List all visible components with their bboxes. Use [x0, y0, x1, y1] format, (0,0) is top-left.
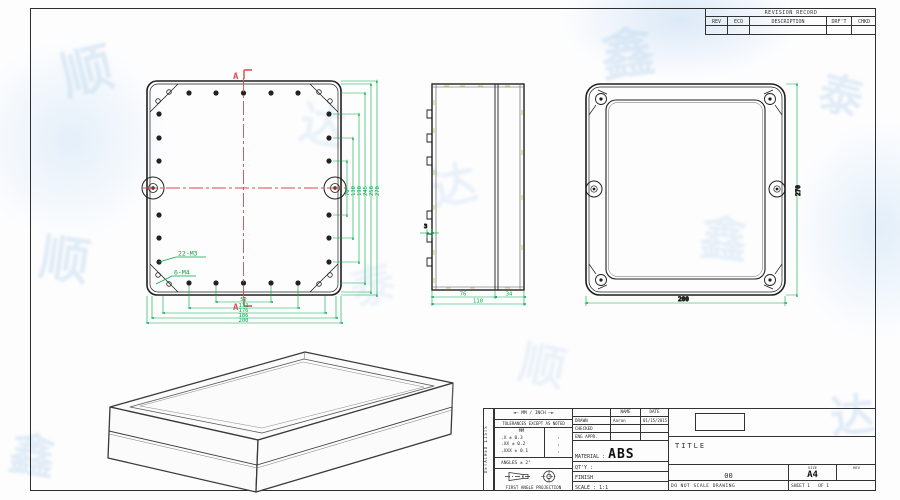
title-cell: TITLE: [668, 436, 876, 464]
logo-cell: [668, 408, 876, 436]
tolerance-values: MM .X ± 0.3 .XX ± 0.2 .XXX ± 0.1: [494, 427, 544, 457]
section-label-top: A: [233, 72, 239, 82]
checked-name: [610, 424, 640, 432]
revision-col-description: DESCRIPTION: [749, 17, 826, 26]
scale-cell: SCALE : 1:1: [572, 481, 668, 491]
finish-cell: FINISH: [572, 471, 668, 481]
detached-lists-strip: DETACHED LISTS: [483, 408, 494, 491]
drawn-label: DRAWN: [572, 416, 610, 424]
checked-label: CHECKED: [572, 424, 610, 432]
drawn-date: 01/15/2015: [640, 416, 668, 424]
do-not-scale-note: DO NOT SCALE DRAWING: [668, 480, 788, 491]
first-angle-projection-symbol: [497, 470, 572, 483]
revision-col-eco: ECO: [727, 17, 749, 26]
dim-text: 270: [375, 186, 381, 196]
eng-appr-date: [640, 432, 668, 440]
tolerance-row: .XXX ± 0.1: [501, 449, 542, 456]
revision-table: REVISION RECORD REV ECO DESCRIPTION DRF'…: [705, 8, 876, 35]
rev-label: REV: [837, 465, 876, 470]
date-header: DATE: [640, 408, 668, 416]
units-row: ◄— MM / INCH —►: [494, 408, 572, 419]
revision-table-empty-row: [705, 26, 876, 35]
material-cell: MATERIAL : ABS: [572, 440, 668, 461]
material-label: MATERIAL :: [575, 454, 605, 460]
size-value: A4: [789, 470, 836, 480]
projection-cell: FIRST ANGLE PROJECTION: [494, 468, 572, 491]
checked-date: [640, 424, 668, 432]
drawing-number-cell: 00: [668, 464, 788, 480]
revision-table-title: REVISION RECORD: [705, 8, 876, 17]
dim-text: 200: [239, 318, 249, 324]
front-view: A A 22-M3 6-M4 70 130 190 245 258 270: [142, 70, 381, 324]
sheet-cell: SHEET 1 OF 1: [788, 480, 876, 491]
projection-label: FIRST ANGLE PROJECTION: [497, 485, 570, 490]
sheet-of: OF 1: [818, 484, 829, 489]
tolerance-dots: · · ·: [544, 427, 572, 457]
eng-appr-label: ENG APPR.: [572, 432, 610, 440]
sheet-number: SHEET 1: [791, 484, 810, 489]
material-value: ABS: [608, 447, 634, 461]
logo-box: [695, 413, 745, 431]
hole-callout-m4: 6-M4: [174, 269, 190, 277]
size-cell: SIZE A4: [788, 464, 836, 480]
revision-col-drft: DRF'T: [826, 17, 851, 26]
side-view: 3 76 34 110: [420, 84, 524, 306]
revision-col-rev: REV: [705, 17, 727, 26]
hidden-line-ticks: [434, 86, 522, 288]
hole-callout-m3: 22-M3: [178, 250, 198, 258]
approvals-corner: [572, 408, 610, 416]
eng-appr-name: [610, 432, 640, 440]
revision-col-chkd: CHKD: [851, 17, 876, 26]
back-view: 270 200: [586, 84, 802, 306]
qty-cell: QT'Y :: [572, 461, 668, 471]
isometric-view: [108, 352, 453, 492]
revision-table-header: REV ECO DESCRIPTION DRF'T CHKD: [705, 17, 876, 26]
dim-text: 110: [473, 299, 483, 305]
dim-text: 270: [795, 185, 802, 196]
drawn-name: Aaron: [610, 416, 640, 424]
angles-tolerance: ANGLES ± 2°: [494, 457, 572, 468]
tolerance-note: TOLERANCES EXCEPT AS NOTED: [494, 419, 572, 427]
rev-cell: REV: [836, 464, 876, 480]
name-header: NAME: [610, 408, 640, 416]
dim-text: 76: [460, 292, 467, 298]
dim-text: 34: [506, 292, 513, 298]
dim-text: 3: [424, 224, 427, 230]
dim-text: 200: [678, 296, 689, 303]
